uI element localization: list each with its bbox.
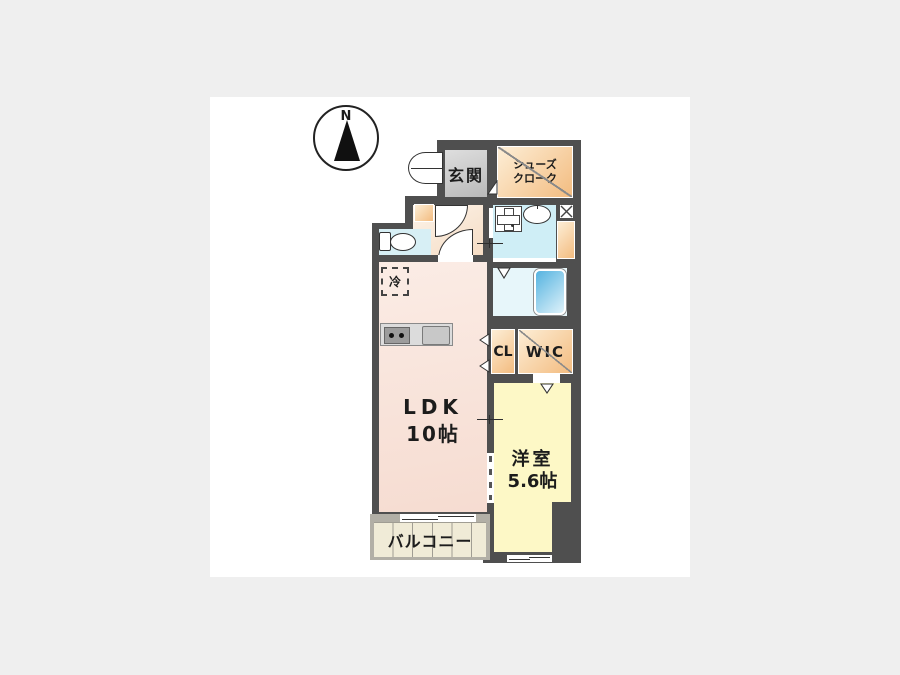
wic-door-marker-icon (540, 383, 554, 394)
balcony-label: バルコニー (388, 528, 473, 552)
walk-in-closet-label: WIC (526, 343, 565, 361)
entrance-door-arc-icon (408, 152, 443, 184)
hallway-ldk-opening (438, 255, 473, 262)
shoe-closet-label-line1: シューズ (513, 158, 556, 172)
balcony-floor: バルコニー (374, 522, 486, 557)
ldk-label: LDK (379, 395, 487, 419)
compass-north-arrow-icon (334, 120, 360, 161)
toilet-icon (390, 233, 416, 251)
dimension-tick (477, 243, 503, 244)
closet-room: CL (492, 330, 514, 373)
pipe-space-x-icon (560, 205, 573, 218)
wic-door-opening (533, 374, 560, 383)
ldk-western-room-sliding-door (487, 453, 494, 503)
western-room-size-label: 5.6帖 (494, 467, 571, 493)
kitchen-sink-icon (422, 326, 450, 345)
closet-door-chevron-icon (479, 333, 490, 347)
ldk-room (379, 262, 487, 512)
compass-rose: N (313, 105, 379, 171)
kitchen-stove-icon (384, 327, 410, 344)
entrance-room: 玄関 (445, 150, 487, 197)
shoe-closet-room: シューズ クローク (498, 147, 572, 197)
floor-plan-canvas: N バルコニー 玄関 シューズ クローク 冷 LDK 10帖 (210, 97, 690, 577)
ldk-size-label: 10帖 (379, 418, 487, 447)
western-room-window-icon (507, 555, 552, 562)
washing-machine-pan-icon (495, 206, 522, 232)
shoe-closet-label-line2: クローク (513, 172, 557, 186)
refrigerator-label: 冷 (389, 273, 401, 290)
screenshot-root: { "compass": { "north_label": "N" }, "ro… (0, 0, 900, 675)
washroom-bathroom-threshold (493, 258, 556, 262)
refrigerator-space: 冷 (381, 267, 409, 296)
kitchen-counter (380, 323, 453, 346)
bathtub-icon (534, 269, 566, 315)
closet-label: CL (493, 344, 512, 360)
entrance-label: 玄関 (448, 162, 484, 186)
washroom-cabinet (558, 222, 574, 258)
wall-western-room-notch (552, 502, 581, 552)
dimension-tick (477, 419, 503, 420)
walk-in-closet-room: WIC (519, 330, 572, 373)
shoe-closet-door-wedge-icon (487, 180, 498, 195)
washbasin-icon (523, 205, 551, 224)
hallway-storage (415, 205, 433, 221)
bathroom-door-marker-icon (497, 267, 511, 279)
washroom-door-opening (489, 208, 493, 238)
closet-door-chevron-icon (479, 359, 490, 373)
ldk-balcony-window-icon (400, 514, 476, 522)
